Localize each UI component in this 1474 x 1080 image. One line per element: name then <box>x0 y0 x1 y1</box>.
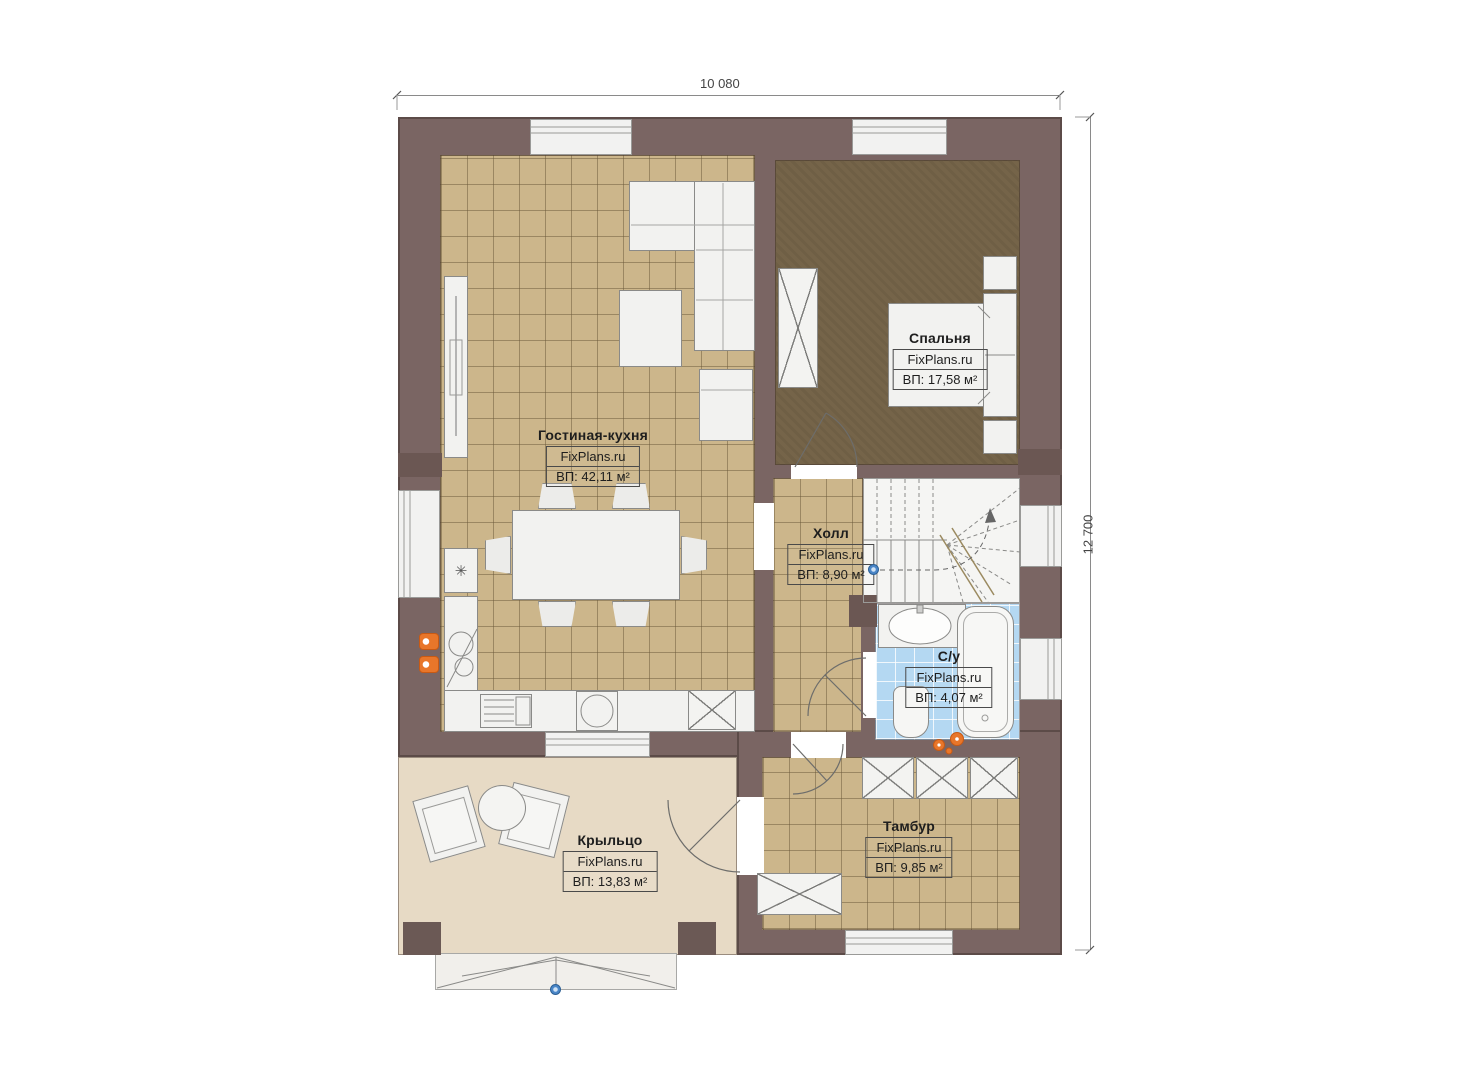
front-door-opening <box>737 797 764 875</box>
room-name: Крыльцо <box>563 832 658 848</box>
room-label-bathroom: С/у FixPlans.ru ВП: 4,07 м² <box>905 648 992 708</box>
room-label-living: Гостиная-кухня FixPlans.ru ВП: 42,11 м² <box>538 427 648 487</box>
living-hall-opening <box>754 503 774 570</box>
fridge-icon: ✳ <box>444 548 478 593</box>
bed-headboard <box>983 293 1017 417</box>
tambour-wardrobe <box>970 757 1018 799</box>
window-tambour-bottom <box>845 930 953 955</box>
room-label-bedroom: Спальня FixPlans.ru ВП: 17,58 м² <box>893 330 988 390</box>
window-living-left <box>398 490 440 598</box>
floor-plan: 10 080 12 700 ✳ <box>0 0 1474 1080</box>
dining-chair <box>485 536 511 574</box>
coffee-table <box>619 290 682 367</box>
tambour-storage <box>757 873 842 915</box>
window-living-top <box>530 119 632 155</box>
stove-burner-icon <box>419 633 439 650</box>
kitchen-sink-cabinet <box>576 691 618 731</box>
room-area: ВП: 17,58 м² <box>894 369 987 389</box>
dimension-height-label: 12 700 <box>1080 515 1095 555</box>
room-name: С/у <box>905 648 992 664</box>
tv-unit <box>444 276 468 458</box>
watermark: FixPlans.ru <box>547 447 639 466</box>
room-info-box: FixPlans.ru ВП: 9,85 м² <box>865 837 952 878</box>
kitchen-cabinet <box>688 690 736 730</box>
watermark: FixPlans.ru <box>894 350 987 369</box>
window-stairs-right <box>1020 505 1062 567</box>
room-info-box: FixPlans.ru ВП: 42,11 м² <box>546 446 640 487</box>
dimension-width-label: 10 080 <box>700 76 740 91</box>
room-info-box: FixPlans.ru ВП: 17,58 м² <box>893 349 988 390</box>
room-label-porch: Крыльцо FixPlans.ru ВП: 13,83 м² <box>563 832 658 892</box>
dimension-line-top <box>397 95 1060 96</box>
room-area: ВП: 4,07 м² <box>906 687 991 707</box>
room-area: ВП: 42,11 м² <box>547 466 639 486</box>
wall-pilaster <box>849 595 877 627</box>
room-area: ВП: 9,85 м² <box>866 857 951 877</box>
nightstand <box>983 420 1017 454</box>
dining-chair <box>538 601 576 627</box>
porch-table <box>478 785 526 831</box>
stairs-floor <box>863 478 1020 603</box>
sofa-right <box>694 181 755 351</box>
marker-icon[interactable] <box>868 564 879 575</box>
wall-pilaster <box>1018 449 1062 475</box>
watermark: FixPlans.ru <box>866 838 951 857</box>
room-name: Холл <box>787 525 874 541</box>
window-bedroom-top <box>852 119 947 155</box>
bathroom-vanity <box>878 604 966 648</box>
porch-armchair-seat <box>422 797 477 854</box>
watermark: FixPlans.ru <box>788 545 873 564</box>
bedroom-wardrobe <box>778 268 818 388</box>
dining-chair <box>681 536 707 574</box>
room-name: Гостиная-кухня <box>538 427 648 443</box>
dining-table <box>512 510 680 600</box>
bedroom-door-opening <box>791 465 857 479</box>
porch-column <box>403 922 441 955</box>
hall-tambour-door-opening <box>791 732 846 758</box>
watermark: FixPlans.ru <box>564 852 657 871</box>
room-area: ВП: 13,83 м² <box>564 871 657 891</box>
porch-column <box>678 922 716 955</box>
stove-burner-icon <box>419 656 439 673</box>
watermark: FixPlans.ru <box>906 668 991 687</box>
nightstand <box>983 256 1017 290</box>
marker-icon[interactable] <box>550 984 561 995</box>
room-name: Спальня <box>893 330 988 346</box>
room-name: Тамбур <box>865 818 952 834</box>
window-bathroom-right <box>1020 638 1062 700</box>
tambour-wardrobe <box>862 757 914 799</box>
bathroom-door-opening <box>863 652 876 718</box>
room-info-box: FixPlans.ru ВП: 4,07 м² <box>905 667 992 708</box>
tambour-wardrobe <box>916 757 968 799</box>
wall-pilaster <box>398 453 442 477</box>
room-area: ВП: 8,90 м² <box>788 564 873 584</box>
room-info-box: FixPlans.ru ВП: 13,83 м² <box>563 851 658 892</box>
room-label-hall: Холл FixPlans.ru ВП: 8,90 м² <box>787 525 874 585</box>
room-label-tambour: Тамбур FixPlans.ru ВП: 9,85 м² <box>865 818 952 878</box>
armchair <box>699 369 753 441</box>
dishwasher <box>480 694 532 728</box>
room-info-box: FixPlans.ru ВП: 8,90 м² <box>787 544 874 585</box>
dining-chair <box>612 601 650 627</box>
window-living-bottom <box>545 732 650 757</box>
